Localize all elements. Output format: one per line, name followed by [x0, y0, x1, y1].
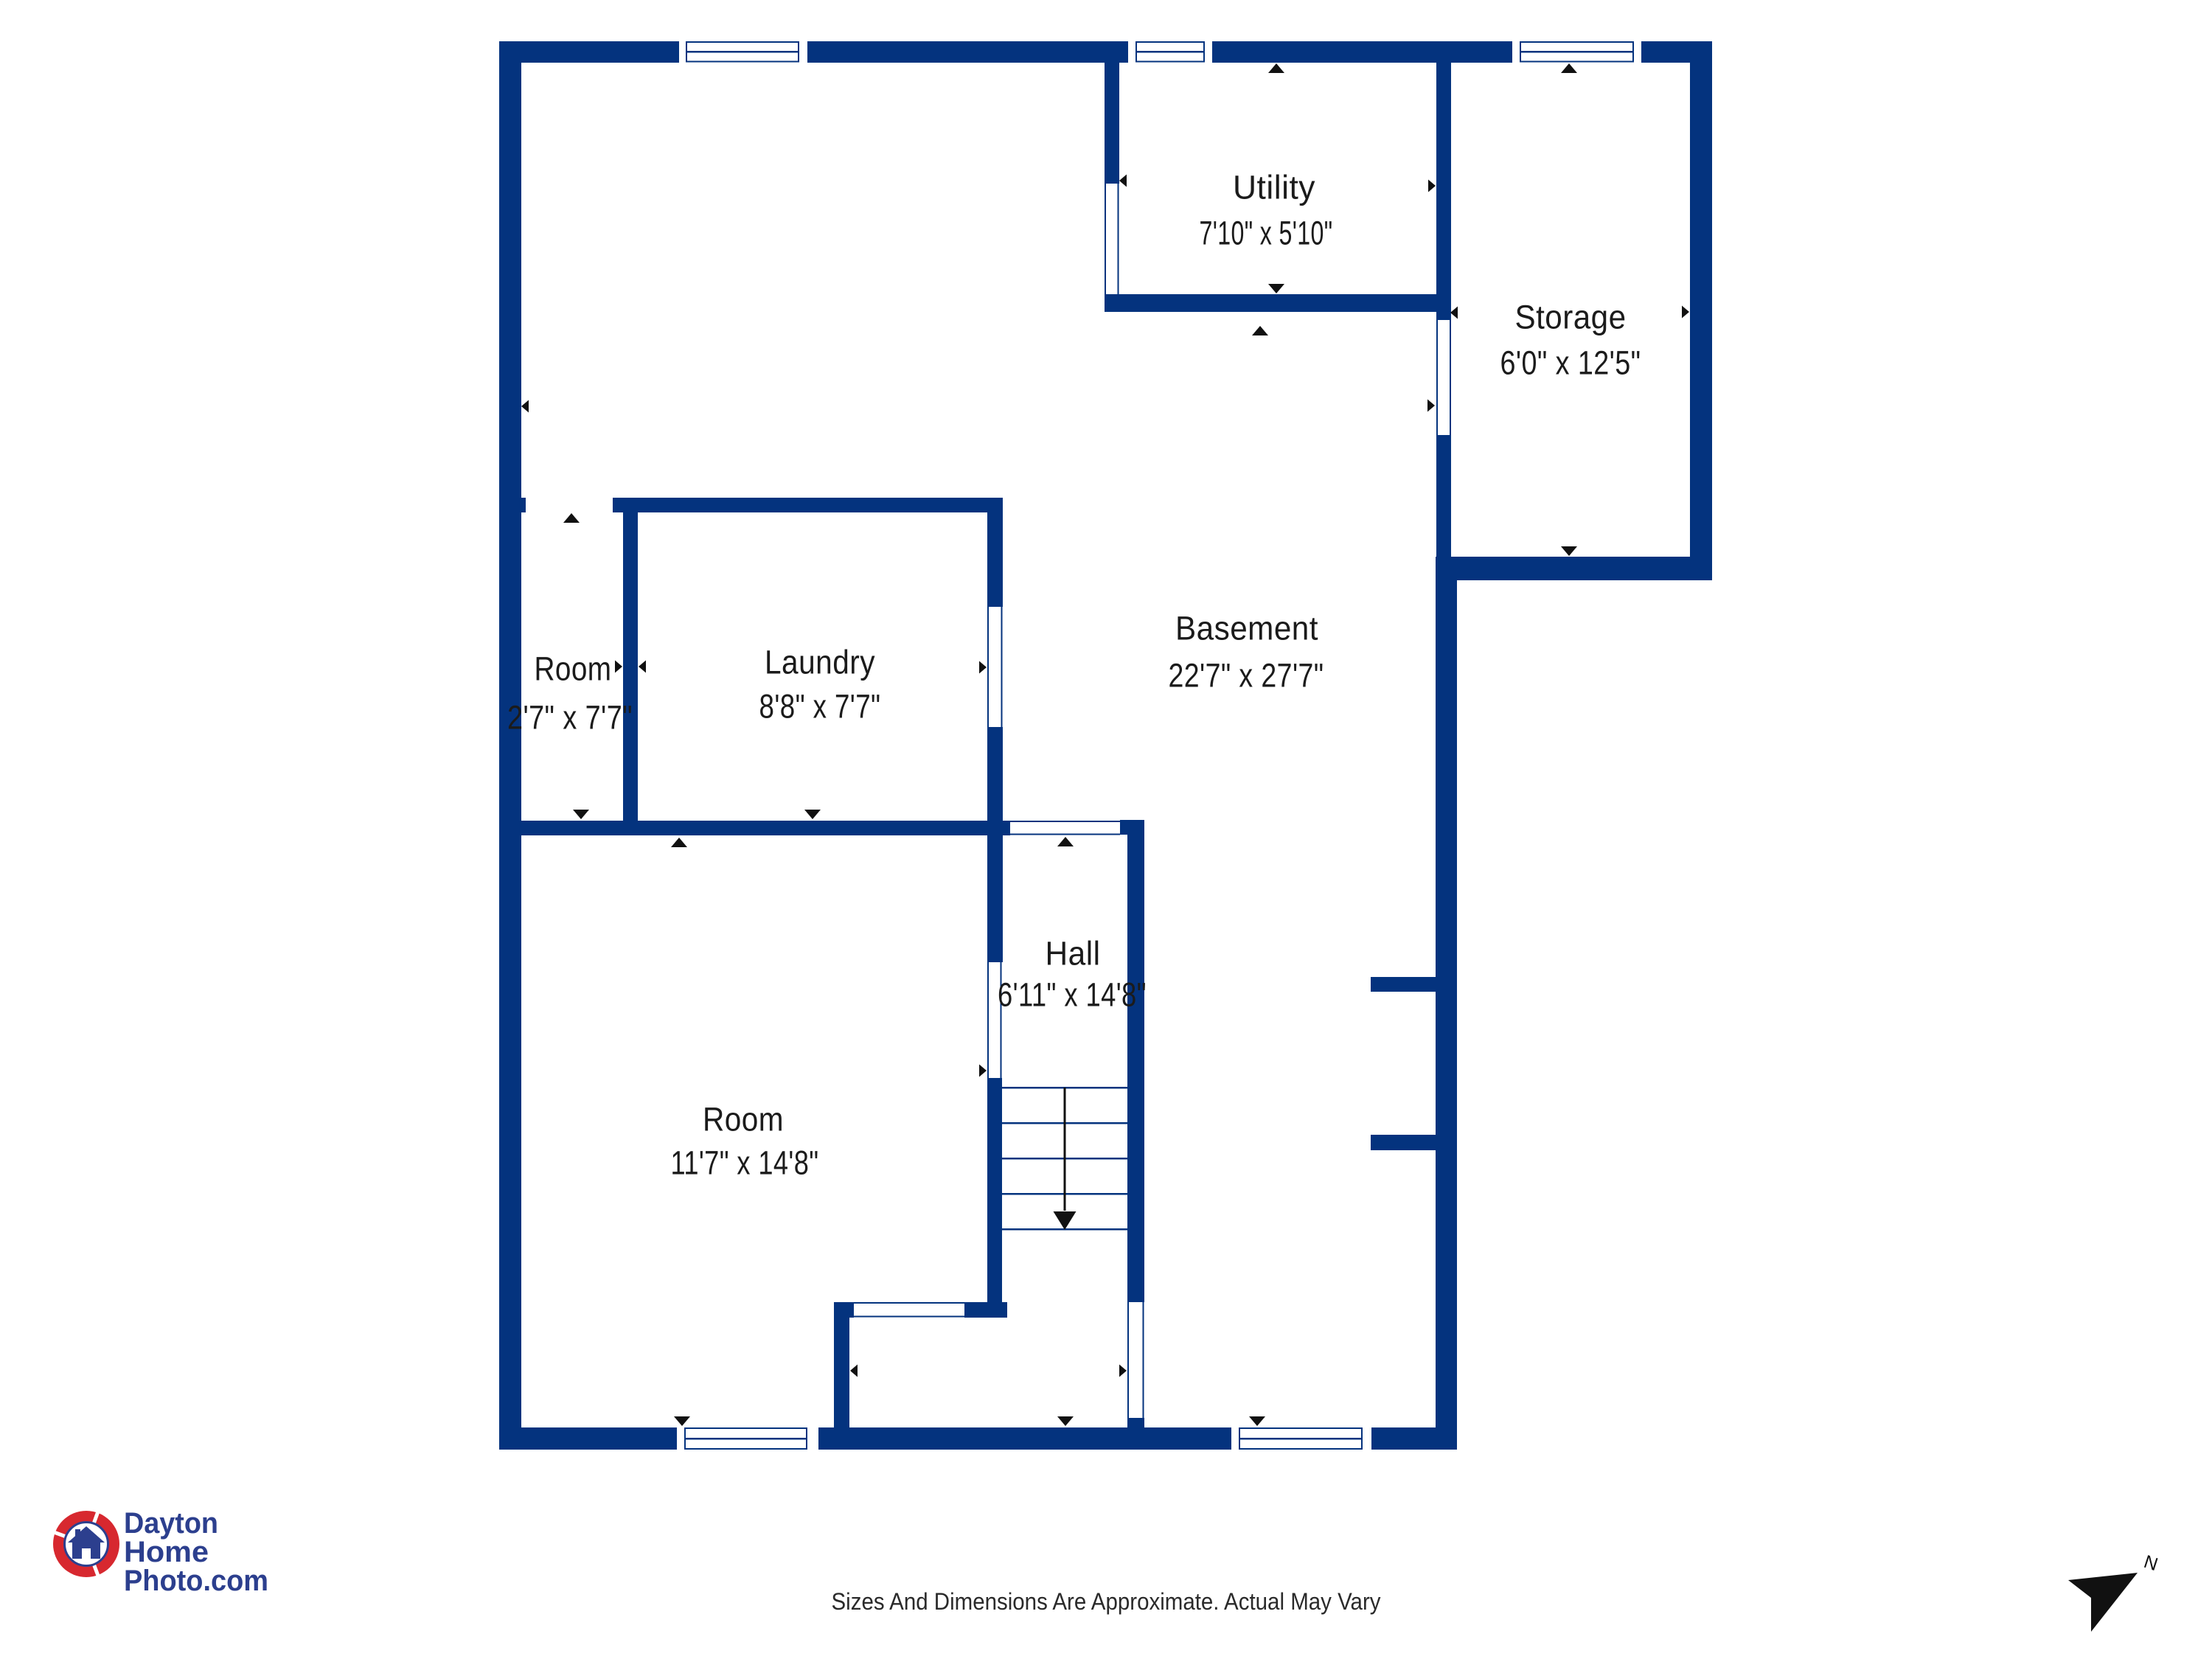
svg-text:Hall: Hall [1046, 935, 1101, 973]
svg-text:Home: Home [124, 1536, 209, 1568]
svg-text:6'11" x 14'8": 6'11" x 14'8" [998, 976, 1147, 1014]
svg-text:22'7" x 27'7": 22'7" x 27'7" [1169, 657, 1324, 695]
svg-text:8'8" x 7'7": 8'8" x 7'7" [759, 688, 881, 726]
svg-text:Room: Room [535, 650, 612, 688]
svg-text:Room: Room [703, 1101, 784, 1138]
svg-text:Utility: Utility [1233, 169, 1315, 206]
svg-text:11'7" x 14'8": 11'7" x 14'8" [671, 1144, 819, 1182]
svg-text:2'7" x 7'7": 2'7" x 7'7" [507, 699, 633, 737]
svg-text:Sizes And Dimensions Are Appro: Sizes And Dimensions Are Approximate. Ac… [832, 1588, 1381, 1615]
svg-text:Basement: Basement [1175, 610, 1318, 647]
svg-text:7'10" x 5'10": 7'10" x 5'10" [1200, 215, 1333, 252]
svg-text:Photo.com: Photo.com [124, 1565, 268, 1597]
svg-text:Storage: Storage [1515, 299, 1627, 336]
svg-text:6'0" x 12'5": 6'0" x 12'5" [1500, 344, 1641, 382]
svg-text:Laundry: Laundry [765, 644, 875, 681]
svg-text:Dayton: Dayton [124, 1507, 218, 1540]
